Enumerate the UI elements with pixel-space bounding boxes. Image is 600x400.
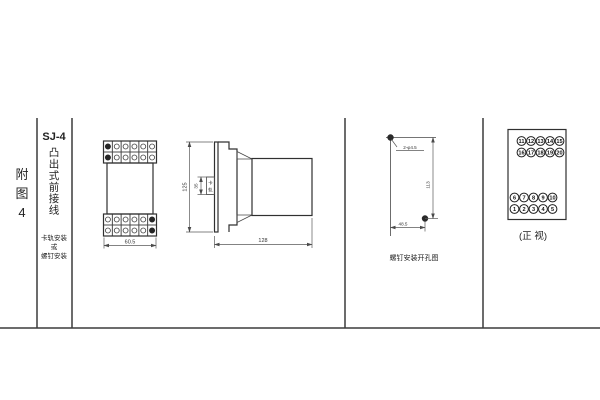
type-char: 前 bbox=[49, 181, 60, 194]
side-view-drawing: 卡 轨 35 125 128 bbox=[183, 142, 313, 248]
terminal-number: 6 bbox=[513, 196, 516, 202]
terminal-number: 16 bbox=[518, 151, 524, 157]
terminal-screw bbox=[150, 144, 155, 149]
terminal-number: 12 bbox=[528, 139, 534, 145]
type-char: 线 bbox=[49, 204, 60, 217]
terminal-screw bbox=[123, 217, 128, 222]
terminal-screw bbox=[105, 228, 110, 233]
figure-label-char: 附 bbox=[15, 167, 28, 182]
mount-note-line: 或 bbox=[51, 242, 58, 251]
type-char: 出 bbox=[49, 158, 60, 171]
side-body-outline bbox=[252, 159, 312, 216]
type-char: 接 bbox=[49, 192, 60, 205]
drill-hole-drawing: 2-φ4.5 113 48.5 螺钉安装开孔图 bbox=[386, 135, 439, 262]
terminal-number: 2 bbox=[522, 207, 525, 213]
terminal-number: 1 bbox=[513, 207, 516, 213]
terminal-number: 8 bbox=[532, 196, 535, 202]
terminal-front-view-drawing: 1112131415161718192067891012345 (正 视) bbox=[508, 130, 566, 243]
terminal-screw bbox=[150, 155, 155, 160]
drill-vertical-dimension: 113 bbox=[426, 181, 431, 189]
type-char: 凸 bbox=[49, 147, 60, 159]
terminal-screw bbox=[141, 155, 146, 160]
terminal-screw bbox=[114, 144, 119, 149]
mount-note-line: 螺钉安装 bbox=[41, 251, 68, 260]
leader-line bbox=[392, 140, 398, 148]
figure-number-label: 附 图 4 bbox=[15, 167, 28, 220]
terminal-screw bbox=[141, 217, 146, 222]
model-label: SJ-4 bbox=[42, 131, 66, 143]
terminal-number: 5 bbox=[551, 207, 554, 213]
terminal-screw bbox=[132, 144, 137, 149]
terminal-number: 9 bbox=[541, 196, 544, 202]
terminal-screw bbox=[123, 228, 128, 233]
side-step-profile bbox=[218, 142, 237, 232]
drill-horizontal-dimension: 48.5 bbox=[399, 222, 408, 227]
terminal-screw bbox=[141, 144, 146, 149]
side-height-dimension: 125 bbox=[183, 182, 189, 191]
mounting-hole bbox=[388, 135, 393, 140]
terminal-screw bbox=[123, 144, 128, 149]
terminal-screw bbox=[114, 155, 119, 160]
terminal-number: 11 bbox=[519, 139, 525, 145]
type-char: 式 bbox=[49, 169, 60, 182]
terminal-screw bbox=[132, 228, 137, 233]
holes-spec-label: 2-φ4.5 bbox=[403, 145, 417, 150]
terminal-screw bbox=[132, 155, 137, 160]
terminal-number: 13 bbox=[537, 139, 543, 145]
terminal-number: 7 bbox=[522, 196, 525, 202]
front-width-dimension: 60.5 bbox=[125, 240, 136, 246]
terminal-screw bbox=[105, 144, 110, 149]
terminal-number: 15 bbox=[556, 139, 562, 145]
terminal-circle-grid: 1112131415161718192067891012345 bbox=[510, 137, 564, 214]
terminal-number: 14 bbox=[547, 139, 554, 145]
terminal-number: 20 bbox=[556, 151, 562, 157]
terminal-number: 17 bbox=[528, 151, 534, 157]
relay-type-label: SJ-4 凸 出 式 前 接 线 卡轨安装 或 螺钉安装 bbox=[41, 131, 68, 260]
side-top-wedge bbox=[237, 152, 252, 160]
terminal-number: 19 bbox=[547, 151, 553, 157]
front-body-outline bbox=[107, 163, 153, 214]
side-depth-dimension: 128 bbox=[258, 238, 267, 244]
terminal-screw bbox=[114, 217, 119, 222]
terminal-screw bbox=[123, 155, 128, 160]
front-view-drawing: 60.5 bbox=[104, 141, 157, 249]
terminal-screw bbox=[132, 217, 137, 222]
drill-view-caption: 螺钉安装开孔图 bbox=[390, 253, 439, 262]
frame-rules bbox=[0, 118, 600, 328]
side-bottom-wedge bbox=[237, 215, 252, 223]
terminal-screw bbox=[105, 217, 110, 222]
rail-width-dimension: 35 bbox=[194, 183, 199, 189]
technical-drawing-page: 附 图 4 SJ-4 凸 出 式 前 接 线 卡轨安装 或 螺钉安装 60.5 … bbox=[0, 0, 600, 400]
terminal-view-caption: (正 视) bbox=[519, 230, 547, 242]
terminal-number: 18 bbox=[537, 151, 543, 157]
terminal-screw bbox=[150, 228, 155, 233]
mount-note-line: 卡轨安装 bbox=[41, 233, 68, 242]
terminal-screw bbox=[150, 217, 155, 222]
figure-label-char: 4 bbox=[18, 205, 25, 220]
terminal-screw bbox=[105, 155, 110, 160]
side-front-plate bbox=[215, 142, 219, 232]
figure-label-char: 图 bbox=[15, 186, 28, 201]
terminal-number: 3 bbox=[532, 207, 535, 213]
front-terminal-grid bbox=[104, 141, 157, 236]
rail-label-char: 轨 bbox=[208, 187, 213, 194]
terminal-screw bbox=[141, 228, 146, 233]
figure-canvas: 附 图 4 SJ-4 凸 出 式 前 接 线 卡轨安装 或 螺钉安装 60.5 … bbox=[0, 0, 600, 400]
terminal-screw bbox=[114, 228, 119, 233]
rail-label-char: 卡 bbox=[208, 180, 213, 187]
terminal-number: 10 bbox=[549, 196, 555, 202]
